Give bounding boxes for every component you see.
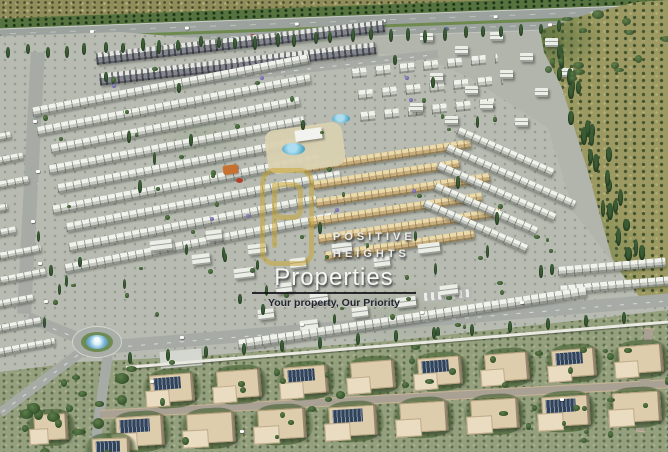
tree [255,81,260,85]
jacaranda-tree [335,208,339,212]
tree [250,268,255,273]
boulevard-cypress [318,337,322,349]
tree [546,238,549,242]
cypress-tree [351,29,355,42]
cypress-tree [623,219,629,231]
car [548,23,552,26]
tree [562,421,566,427]
tree [93,418,104,429]
cypress-tree [37,231,41,242]
apartment-block-ne [520,53,533,62]
tree [455,323,461,326]
cypress-tree [499,26,503,37]
car [33,120,37,123]
cypress-tree [157,40,161,54]
tree [497,281,503,285]
tree [61,379,68,387]
tree [179,155,184,159]
cypress-tree [456,176,460,188]
tree [274,369,279,376]
tree [139,267,142,270]
tree [288,420,294,424]
apartment-block-ne [500,70,513,79]
cypress-tree [276,33,280,46]
tree [240,387,246,393]
field-bush [622,18,631,25]
cypress-tree [253,36,257,50]
cypress-tree [58,284,62,295]
field-bush [573,69,585,75]
cypress-tree [233,38,237,49]
boulevard-cypress [622,312,626,324]
boulevard-cypress [280,340,284,352]
tree [20,409,33,418]
tree [532,405,537,411]
boulevard-cypress [128,352,132,364]
cypress-tree [301,120,305,129]
tree [405,275,410,280]
cypress-tree [49,265,53,276]
tree [607,398,614,402]
tree [402,382,409,388]
car [31,220,35,223]
tree [624,348,631,354]
tree [502,382,508,388]
boulevard-cypress [508,321,512,333]
cypress-tree [265,285,269,296]
tree [155,312,160,318]
tree [290,96,294,102]
tree [308,406,317,412]
tree [320,131,324,134]
cypress-tree [486,245,490,257]
tree [22,425,28,432]
field-bush [579,28,587,33]
tree [417,194,422,198]
cypress-tree [177,83,181,92]
tree [280,412,285,418]
tree [284,293,289,298]
tree [500,290,504,295]
cypress-tree [333,314,337,324]
tree [390,314,395,320]
cypress-tree [261,304,265,316]
aerial-masterplan-render: POSITIVE HEIGHTS Properties Your propert… [0,0,668,452]
boulevard-cypress [394,330,398,342]
cypress-tree [123,279,127,289]
tree [238,381,245,386]
tree [498,204,503,209]
boulevard-cypress [432,327,436,339]
tree [411,345,420,350]
tree [406,297,411,301]
tree [135,133,139,137]
tree [191,230,195,234]
cypress-tree [557,67,562,81]
tree [327,167,332,172]
cypress-tree [576,81,581,94]
boulevard-cypress [546,318,550,330]
tree [300,235,304,239]
tree [325,255,329,259]
tree [182,437,189,445]
tree [446,296,452,299]
tree [40,448,51,452]
tree [95,401,105,407]
cypress-tree [138,180,142,193]
tree [117,395,127,405]
apartment-block-ne [535,88,548,97]
tree [72,429,86,435]
cypress-tree [189,134,193,146]
car [420,311,424,314]
tree [280,378,286,384]
car [44,300,48,303]
tree [441,114,444,119]
cypress-tree [539,265,543,277]
cypress-tree [557,20,561,32]
tree [111,77,116,83]
car [180,336,184,339]
tree [581,438,587,443]
jacaranda-tree [412,189,416,193]
tree [340,307,344,310]
cypress-tree [568,111,574,125]
tree [478,256,483,261]
cypress-tree [223,253,227,263]
tree [643,403,648,407]
tree [156,187,160,190]
field-bush [635,55,642,63]
cypress-tree [568,85,573,99]
cypress-tree [639,245,645,260]
cypress-tree [414,231,418,241]
cypress-tree [476,116,480,127]
tree [490,356,496,363]
tree [499,411,508,415]
cypress-tree [581,127,587,145]
tree [582,406,587,411]
tree [608,431,613,438]
cypress-tree [607,203,612,219]
tree [160,398,165,406]
cypress-tree [6,47,10,59]
cypress-tree [606,147,612,163]
car [184,27,188,30]
cypress-tree [406,28,410,40]
apartment-block-ne [545,38,558,47]
tree [493,117,496,122]
tree [115,373,129,384]
jacaranda-tree [405,76,409,80]
cypress-tree [593,154,599,171]
car [560,398,564,401]
cypress-tree [431,77,435,88]
car [295,22,299,25]
tree [425,379,434,384]
jacaranda-tree [246,214,250,218]
jacaranda-tree [409,98,413,102]
tree [607,353,614,361]
tree [449,368,456,374]
car [38,262,42,265]
tree [165,215,170,220]
tree [584,430,589,434]
car [240,430,244,433]
cypress-tree [78,257,82,267]
cypress-tree [328,32,332,43]
car [493,15,497,18]
tree [78,391,88,398]
tree [568,367,573,374]
tree [573,405,580,411]
tree [126,366,137,372]
field-bush [569,76,577,81]
cypress-tree [256,260,260,269]
cypress-tree [104,42,108,53]
cypress-tree [185,244,189,254]
field-bush [558,58,565,64]
cypress-tree [314,32,318,44]
apartment-block-ne [455,46,468,55]
tree [336,391,345,399]
jacaranda-tree [260,76,264,80]
boulevard-cypress [584,315,588,327]
car [36,170,40,173]
tree [235,124,241,130]
tree [535,351,543,356]
car [150,380,154,383]
tree [169,360,175,365]
tree [325,372,329,378]
boulevard-cypress [470,324,474,336]
field-bush [545,66,552,73]
cypress-tree [495,212,499,225]
tree [275,435,279,440]
cypress-tree [434,263,438,275]
tree [526,423,530,431]
cypress-tree [393,55,397,66]
cypress-tree [104,72,108,82]
tree [366,243,370,248]
boulevard-cypress [242,343,246,355]
cypress-tree [153,152,157,165]
tree [67,205,71,208]
jacaranda-tree [210,217,214,221]
scenery [0,0,668,452]
tree [422,98,426,103]
tree [59,137,63,141]
cypress-tree [127,131,131,144]
tree [549,249,553,254]
cypress-tree [550,264,554,275]
cypress-tree [519,24,523,36]
field-bush [573,62,584,69]
tree [534,235,540,239]
tree [125,110,129,114]
cypress-tree [141,38,145,51]
tree [72,375,80,381]
field-bush [661,36,668,42]
tree [125,293,129,297]
tree [447,128,451,131]
jacaranda-tree [112,84,116,88]
tree [66,405,73,412]
cypress-tree [443,28,447,41]
tree [55,419,62,428]
tree [71,284,76,288]
tree [53,300,57,306]
boulevard-cypress [356,333,360,345]
cypress-tree [65,46,69,58]
cypress-tree [481,26,485,37]
cypress-tree [46,47,50,58]
cypress-tree [43,317,47,327]
cypress-tree [65,275,69,288]
tree [409,358,415,364]
tree [43,115,48,121]
cypress-tree [613,200,618,212]
tree [580,347,587,353]
cypress-tree [238,294,242,305]
tree [211,174,215,178]
tree [208,269,213,274]
tree [325,397,332,402]
tree [556,124,560,130]
car [300,323,304,326]
tree [152,67,158,71]
tree [342,192,345,196]
car [520,301,524,304]
boulevard-cypress [204,346,208,358]
cypress-tree [318,222,322,234]
car [90,30,94,33]
tree [215,202,219,207]
tree [463,325,466,329]
boulevard-cypress [166,349,170,361]
cypress-tree [389,29,393,42]
